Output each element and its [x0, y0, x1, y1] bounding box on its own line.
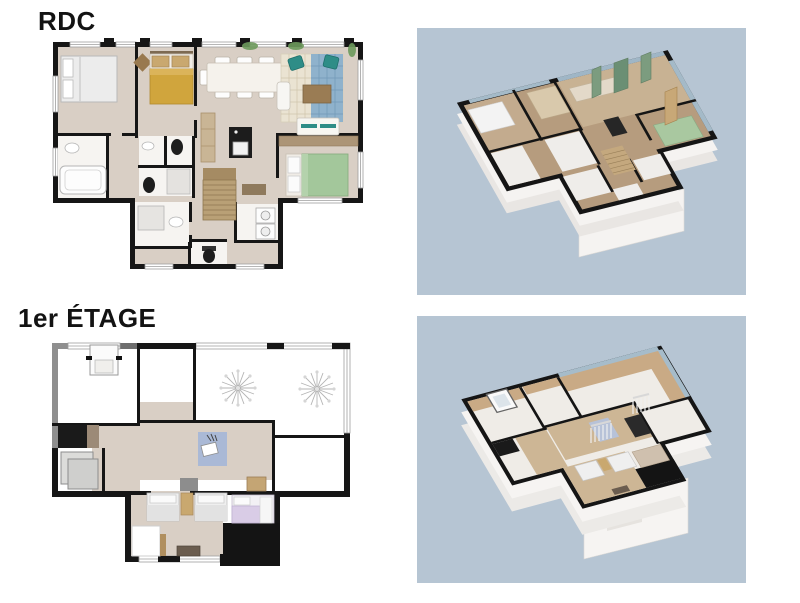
wood-column	[665, 87, 677, 125]
rdc-bed-green	[286, 154, 348, 196]
etage1-2d-plan	[44, 340, 356, 566]
floor-label-rdc: RDC	[38, 6, 96, 37]
single-bed-lilac	[232, 495, 274, 523]
etage1-3d-model	[448, 346, 746, 559]
roof-block-black	[220, 554, 280, 566]
wood-sliver	[160, 534, 166, 556]
tall-cabinet	[201, 113, 215, 162]
kitchen-island	[229, 127, 252, 158]
bench-wood	[247, 477, 266, 491]
etage1-3d-drawing	[417, 316, 746, 583]
floorplan-presentation: RDC	[0, 0, 800, 603]
ceiling-light-2	[298, 370, 335, 407]
rdc-bed-mustard	[150, 51, 193, 104]
etage1-2d-plan-drawing	[44, 340, 356, 566]
chaise-white	[277, 82, 290, 110]
ceiling-light-1	[219, 369, 256, 406]
rdc-2d-plan-drawing	[50, 36, 368, 272]
dresser-dark	[177, 546, 200, 556]
storage-mats-gray	[61, 452, 98, 489]
rdc-2d-plan	[50, 36, 368, 272]
etage1-3d-view	[417, 316, 746, 583]
floor-label-etage1: 1er ÉTAGE	[18, 303, 156, 334]
sofa-white	[297, 118, 339, 135]
desk-with-blue-rug	[198, 432, 227, 466]
rdc-3d-drawing	[417, 28, 746, 295]
rdc-dining-table	[200, 57, 289, 98]
console-table	[242, 184, 266, 195]
wood-panel	[87, 425, 99, 448]
coffee-table	[303, 85, 331, 103]
void-dark	[58, 425, 87, 448]
closet-white	[132, 526, 160, 556]
stair-landing	[180, 478, 198, 491]
rdc-bed-white	[61, 56, 117, 102]
skylight-window	[86, 345, 122, 375]
rdc-3d-model	[446, 50, 746, 257]
rdc-3d-view	[417, 28, 746, 295]
staircase	[203, 168, 236, 220]
closet-band	[279, 136, 358, 146]
